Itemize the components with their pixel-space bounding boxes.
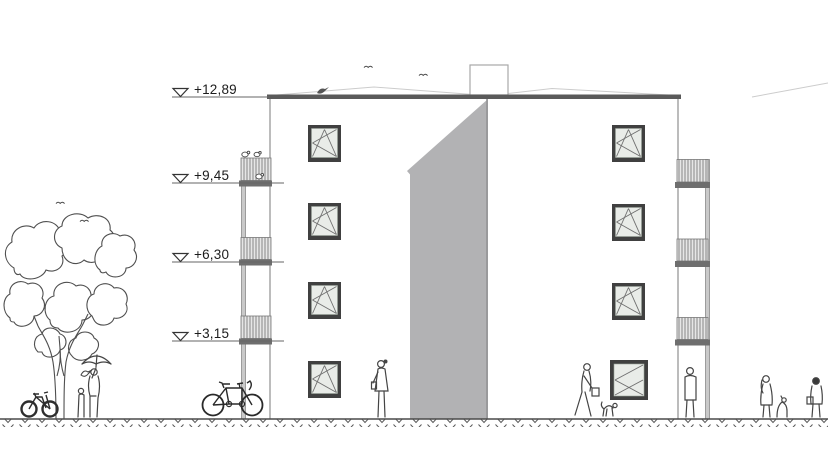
dog (777, 396, 787, 417)
elevation-svg: +12,89 +9,45 +6,30 +3,15 (0, 0, 828, 475)
roof-access-box (470, 65, 508, 95)
balcony-railing (677, 160, 708, 183)
balcony-post (706, 160, 710, 420)
window (308, 125, 341, 162)
window (308, 282, 341, 319)
balcony-slab (239, 339, 272, 345)
window-large (610, 360, 648, 400)
bicycle (22, 392, 58, 417)
balcony-railing (677, 318, 708, 340)
ground-line (0, 419, 828, 427)
window (612, 125, 645, 162)
elevation-drawing: +12,89 +9,45 +6,30 +3,15 (0, 0, 828, 475)
person-far-right (807, 378, 822, 417)
balcony-slab (239, 260, 272, 266)
balcony-slab (675, 261, 710, 267)
bird-icon (364, 66, 373, 67)
elevation-label: +9,45 (194, 168, 229, 183)
balcony-post (242, 158, 246, 419)
balcony-slab (675, 182, 710, 188)
balcony-railing (241, 238, 271, 260)
balcony-slab (675, 340, 710, 346)
tree (4, 214, 136, 419)
window (612, 204, 645, 241)
level-triangle-icon (173, 333, 188, 341)
balcony-railing (241, 316, 271, 339)
roof-parapet (267, 95, 681, 100)
balcony-slab (239, 181, 272, 187)
level-triangle-icon (173, 254, 188, 262)
elevation-label: +12,89 (194, 82, 237, 97)
balcony-column-left (239, 158, 272, 419)
bird-icon (419, 74, 428, 75)
elevation-label: +3,15 (194, 326, 229, 341)
bird-icon (56, 202, 65, 203)
person-with-umbrella (78, 355, 111, 417)
level-triangle-icon (173, 89, 188, 97)
balcony-railing (677, 239, 708, 261)
tandem-bicycle (203, 381, 263, 416)
elevation-marker: +12,89 (172, 82, 270, 97)
window (308, 361, 341, 398)
woman-with-dog (761, 376, 787, 417)
elevation-label: +6,30 (194, 247, 229, 262)
elevation-markers: +12,89 +9,45 +6,30 +3,15 (172, 82, 284, 341)
level-triangle-icon (173, 175, 188, 183)
bird-icon (81, 370, 92, 376)
window (612, 283, 645, 320)
standing-person (685, 368, 696, 417)
window (308, 203, 341, 240)
balcony-column-right (675, 160, 710, 420)
